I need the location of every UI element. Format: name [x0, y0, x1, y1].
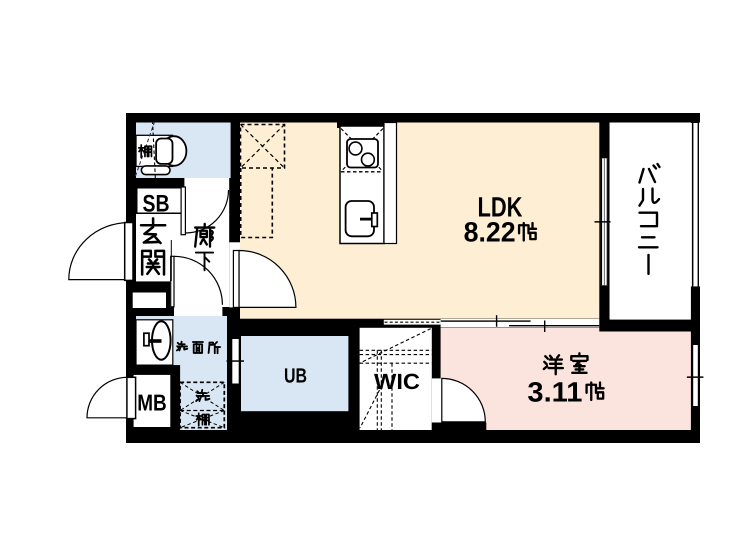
- svg-text:SB: SB: [143, 191, 170, 218]
- svg-text:MB: MB: [137, 390, 167, 416]
- svg-text:8.22: 8.22: [464, 217, 516, 248]
- svg-text:UB: UB: [284, 365, 307, 388]
- svg-text:WIC: WIC: [374, 369, 420, 394]
- svg-text:3.11: 3.11: [527, 376, 582, 407]
